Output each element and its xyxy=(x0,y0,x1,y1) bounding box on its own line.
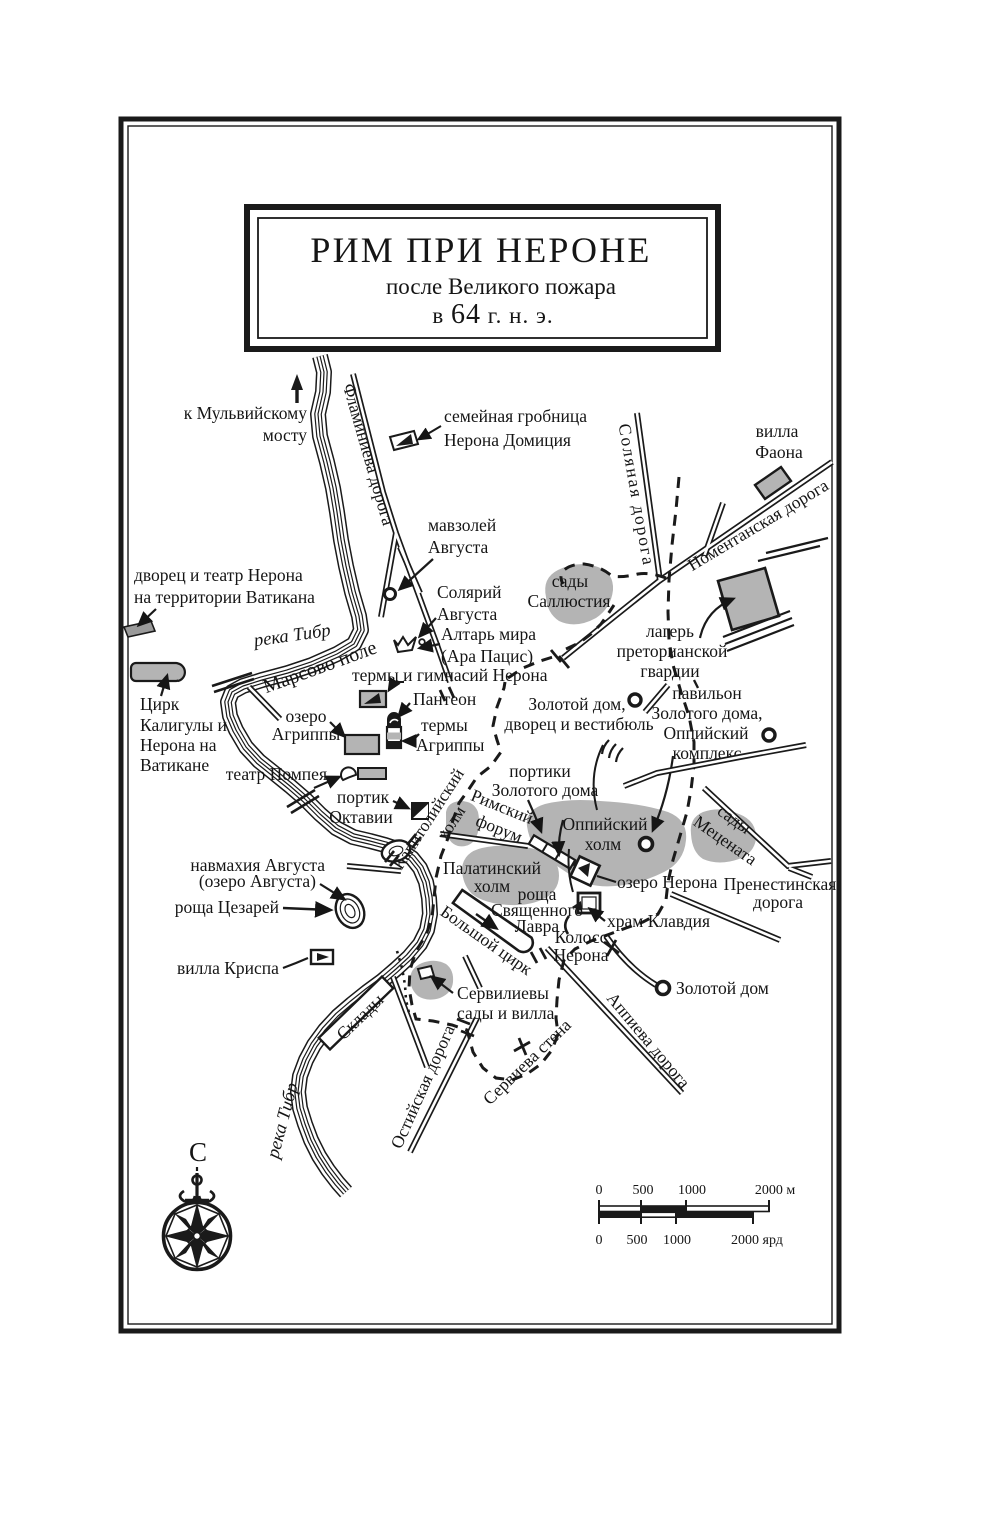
svg-text:Золотой дом: Золотой дом xyxy=(676,978,769,998)
svg-text:С: С xyxy=(189,1137,207,1167)
svg-text:портик: портик xyxy=(337,787,390,807)
svg-text:холм: холм xyxy=(474,876,510,896)
svg-text:дворец и театр Нерона: дворец и театр Нерона xyxy=(134,565,303,585)
svg-text:гвардии: гвардии xyxy=(640,661,699,681)
svg-text:Нерона Домиция: Нерона Домиция xyxy=(444,430,571,450)
svg-text:роща Цезарей: роща Цезарей xyxy=(175,897,279,917)
svg-text:Нерона на: Нерона на xyxy=(140,735,217,755)
svg-text:Лавра: Лавра xyxy=(515,916,560,936)
svg-text:семейная гробница: семейная гробница xyxy=(444,406,587,426)
svg-text:Пантеон: Пантеон xyxy=(413,689,476,709)
svg-text:Ватикане: Ватикане xyxy=(140,755,209,775)
svg-text:театр Помпея: театр Помпея xyxy=(226,764,327,784)
svg-text:1000: 1000 xyxy=(678,1183,706,1198)
svg-text:после Великого пожара: после Великого пожара xyxy=(386,274,616,299)
svg-text:термы и гимнасий Нерона: термы и гимнасий Нерона xyxy=(352,665,548,685)
svg-text:Саллюстия: Саллюстия xyxy=(528,591,611,611)
svg-text:вилла Криспа: вилла Криспа xyxy=(177,958,279,978)
svg-text:холм: холм xyxy=(585,834,621,854)
svg-text:Агриппы: Агриппы xyxy=(416,735,485,755)
svg-text:мавзолей: мавзолей xyxy=(428,515,496,535)
svg-text:термы: термы xyxy=(421,715,468,735)
svg-text:Палатинский: Палатинский xyxy=(443,858,541,878)
svg-text:1000: 1000 xyxy=(663,1233,691,1248)
svg-text:РИМ ПРИ НЕРОНЕ: РИМ ПРИ НЕРОНЕ xyxy=(310,230,651,270)
svg-text:500: 500 xyxy=(633,1183,654,1198)
svg-text:Цирк: Цирк xyxy=(140,694,180,714)
svg-text:озеро: озеро xyxy=(286,706,327,726)
svg-text:Сервилиевы: Сервилиевы xyxy=(457,983,549,1003)
svg-text:Фаона: Фаона xyxy=(755,442,803,462)
svg-text:в 64 г. н. э.: в 64 г. н. э. xyxy=(432,299,553,330)
svg-text:вилла: вилла xyxy=(756,421,799,441)
svg-text:Солярий: Солярий xyxy=(437,582,501,602)
svg-text:500: 500 xyxy=(627,1233,648,1248)
svg-text:сады: сады xyxy=(552,571,589,591)
svg-text:(озеро Августа): (озеро Августа) xyxy=(199,871,316,891)
svg-text:Золотого дома,: Золотого дома, xyxy=(652,703,763,723)
svg-text:Пренестинская: Пренестинская xyxy=(724,874,837,894)
svg-text:Алтарь мира: Алтарь мира xyxy=(441,624,536,644)
svg-text:Золотой дом,: Золотой дом, xyxy=(528,694,625,714)
svg-text:дорога: дорога xyxy=(753,892,803,912)
svg-text:к Мульвийскому: к Мульвийскому xyxy=(184,403,308,423)
svg-text:на территории Ватикана: на территории Ватикана xyxy=(134,587,315,607)
svg-text:Октавии: Октавии xyxy=(329,807,393,827)
svg-text:0: 0 xyxy=(596,1183,603,1198)
svg-text:Колосс: Колосс xyxy=(555,927,608,947)
svg-text:Оппийский: Оппийский xyxy=(663,723,748,743)
svg-text:Оппийский: Оппийский xyxy=(562,814,647,834)
svg-text:сады и вилла: сады и вилла xyxy=(457,1003,555,1023)
svg-text:2000 м: 2000 м xyxy=(755,1183,796,1198)
svg-text:озеро Нерона: озеро Нерона xyxy=(617,872,718,892)
svg-text:Августа: Августа xyxy=(437,604,497,624)
svg-text:(Ара Пацис): (Ара Пацис) xyxy=(441,646,533,666)
svg-text:2000 ярд: 2000 ярд xyxy=(731,1233,783,1248)
svg-text:преторианской: преторианской xyxy=(617,641,728,661)
svg-text:храм Клавдия: храм Клавдия xyxy=(607,911,710,931)
svg-text:портики: портики xyxy=(509,761,571,781)
svg-text:павильон: павильон xyxy=(672,683,742,703)
svg-text:дворец и вестибюль: дворец и вестибюль xyxy=(504,714,653,734)
svg-text:Августа: Августа xyxy=(428,537,488,557)
svg-text:Нерона: Нерона xyxy=(553,945,608,965)
svg-text:Калигулы и: Калигулы и xyxy=(140,715,227,735)
svg-text:лагерь: лагерь xyxy=(646,621,694,641)
svg-text:Золотого дома: Золотого дома xyxy=(492,780,599,800)
svg-text:Агриппы: Агриппы xyxy=(272,724,341,744)
svg-text:0: 0 xyxy=(596,1233,603,1248)
svg-text:мосту: мосту xyxy=(263,425,307,445)
